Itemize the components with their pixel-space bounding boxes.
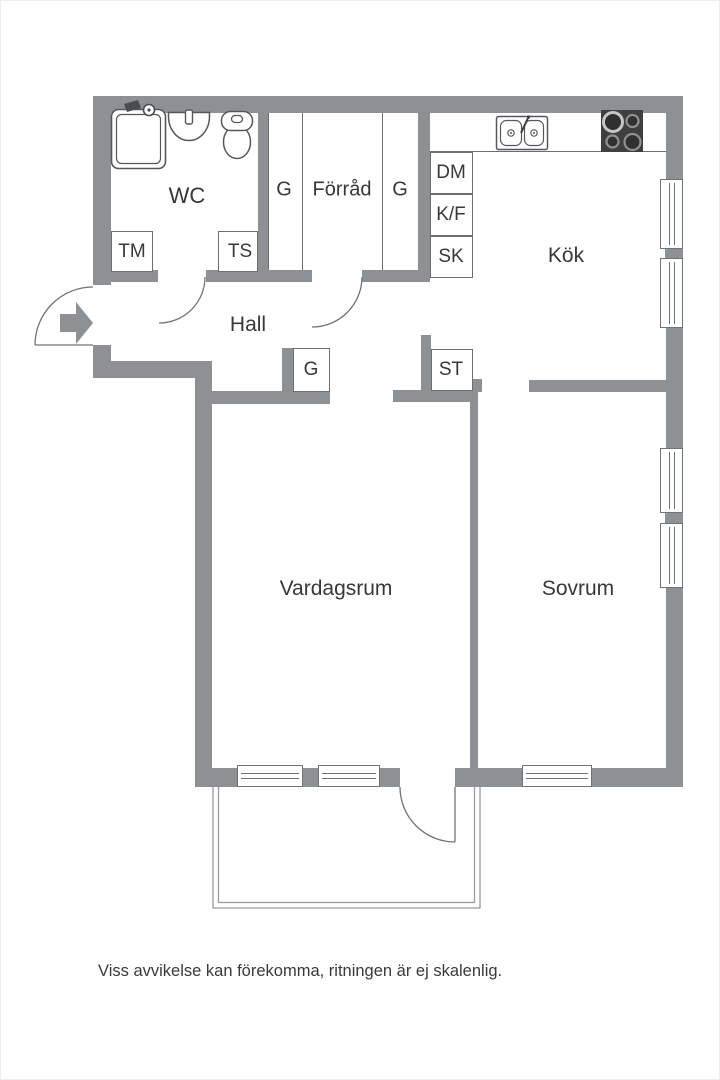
- unit-label-dm: DM: [436, 162, 466, 184]
- toilet-icon: [222, 112, 253, 159]
- window-glass: [322, 773, 376, 779]
- wall-segment: [666, 96, 683, 179]
- window-glass: [241, 773, 299, 779]
- unit-label-sk: SK: [438, 246, 463, 268]
- room-label-forrad: Förråd: [313, 179, 372, 202]
- unit-label-ts: TS: [228, 241, 252, 263]
- window: [237, 765, 303, 787]
- entry-door: [35, 287, 93, 345]
- washbasin-icon: [169, 110, 210, 141]
- balcony-outline: [213, 787, 480, 908]
- room-label-kok: Kök: [548, 244, 584, 268]
- wall-segment: [421, 335, 431, 392]
- window-glass: [669, 262, 675, 324]
- wall-segment: [418, 113, 430, 278]
- entrance-arrow-icon: [60, 302, 93, 344]
- wall-segment: [473, 379, 482, 392]
- wall-segment: [195, 361, 212, 787]
- wall-segment: [393, 390, 473, 402]
- wall-segment: [666, 588, 683, 787]
- wall-segment: [258, 113, 268, 270]
- window: [660, 258, 683, 328]
- window: [522, 765, 592, 787]
- window-glass: [526, 773, 588, 779]
- closet-partition-line: [382, 113, 383, 270]
- closet-partition-line: [302, 113, 303, 270]
- window: [660, 523, 683, 588]
- balcony-door: [400, 787, 455, 842]
- window: [660, 179, 683, 249]
- wall-segment: [195, 768, 237, 787]
- wall-segment: [665, 513, 683, 523]
- wall-segment: [529, 380, 666, 392]
- closet-partition-line: [268, 113, 269, 270]
- kitchen-sink-icon: [497, 115, 548, 149]
- unit-label-g-left: G: [276, 179, 292, 202]
- wall-segment: [455, 768, 522, 787]
- wall-segment: [380, 768, 400, 787]
- wc-door-arc: [159, 277, 205, 323]
- wall-segment: [665, 249, 683, 258]
- wall-segment: [93, 96, 111, 285]
- disclaimer-text: Viss avvikelse kan förekomma, ritningen …: [98, 962, 502, 981]
- unit-label-g-right: G: [392, 179, 408, 202]
- wall-segment: [666, 328, 683, 448]
- floorplan: WC G Förråd G DM K/F SK Kök TM TS Hall G…: [0, 0, 720, 1080]
- room-label-hall: Hall: [230, 313, 266, 337]
- window-glass: [669, 452, 675, 509]
- wall-segment: [470, 392, 478, 787]
- forrad-door-arc: [312, 277, 362, 327]
- wall-segment: [212, 391, 330, 404]
- stove-icon: [601, 110, 643, 152]
- unit-label-kf: K/F: [436, 204, 466, 226]
- window-glass: [669, 183, 675, 245]
- wall-segment: [282, 348, 293, 392]
- window: [660, 448, 683, 513]
- window: [318, 765, 380, 787]
- wall-segment: [93, 96, 683, 113]
- wall-segment: [592, 768, 683, 787]
- unit-label-st: ST: [439, 359, 463, 381]
- room-label-sovrum: Sovrum: [542, 577, 614, 601]
- room-label-wc: WC: [169, 183, 206, 209]
- unit-label-g-hall: G: [304, 359, 319, 381]
- window-glass: [669, 527, 675, 584]
- unit-label-tm: TM: [118, 241, 145, 263]
- room-label-vardagsrum: Vardagsrum: [280, 577, 393, 601]
- wall-segment: [303, 768, 318, 787]
